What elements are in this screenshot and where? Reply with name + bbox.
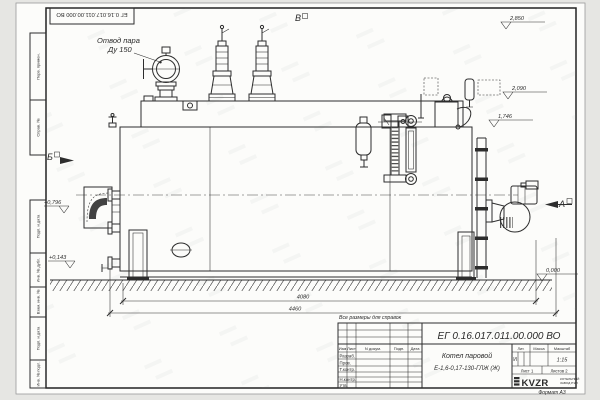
view-label-top: В: [295, 13, 301, 23]
lit-header: Лит.: [518, 347, 525, 351]
product-name: Котел паровой: [442, 352, 492, 360]
dimension-4460: 4460: [289, 307, 302, 313]
col-doc: N докум.: [365, 346, 381, 351]
elevation-0000: 0,000: [546, 268, 561, 274]
margin-label-sprav-no: Справ. №: [36, 118, 41, 136]
doc-number: ЕГ 0.16.017.011.00.000 ВО: [438, 331, 561, 342]
annotation-line2: Ду 150: [107, 45, 133, 54]
format-note: Формат А3: [538, 390, 566, 396]
row-utv: Утв.: [340, 383, 348, 388]
col-list: Лист: [347, 346, 356, 351]
scale-value: 1:15: [557, 358, 569, 364]
ground-line: [50, 280, 552, 291]
elevation-2090: 2,090: [511, 86, 527, 92]
boiler-drawing-svg: ЕГ 0.16.017.011.00.000 ВО Перв. примен. …: [0, 0, 600, 400]
elevation-0796: +0,796: [44, 200, 62, 206]
margin-label-inv-dubl: Инв. № дубл.: [36, 258, 41, 283]
annotation-line1: Отвод пара: [97, 36, 140, 45]
elevation-1746: 1,746: [498, 114, 513, 120]
sheet-number: Лист 1: [521, 369, 534, 374]
col-podp: Подп.: [394, 346, 405, 351]
mass-header: Масса: [533, 347, 545, 351]
margin-label-perv-primen: Перв. примен.: [36, 53, 41, 80]
view-label-left: Б: [47, 152, 53, 162]
product-designation: Е-1,6-0,17-130-ГЛЖ (Ж): [434, 366, 500, 372]
dimension-4080: 4080: [297, 295, 310, 301]
drawing-sheet: ЕГ 0.16.017.011.00.000 ВО Перв. примен. …: [0, 0, 600, 400]
inverted-doc-number: ЕГ 0.16.017.011.00.000 ВО: [56, 11, 128, 17]
elevation-2850: 2,850: [509, 16, 525, 22]
margin-label-inv-podl: Инв. № подл.: [36, 362, 41, 387]
lit-value: И: [513, 357, 517, 363]
brand-tagline-2: ЗАВОД РЭП: [560, 381, 578, 385]
scale-header: Масштаб: [554, 347, 571, 351]
row-prov: Пров.: [340, 361, 351, 366]
sheets-total: Листов 2: [550, 369, 568, 374]
brand-text: KVZR: [522, 378, 549, 389]
elevation-0143: +0,143: [49, 255, 67, 261]
margin-label-vzam-inv: Взам. инв. №: [36, 290, 41, 315]
reference-note: Все размеры для справок: [339, 315, 402, 321]
margin-label-podp-data-lower: Подп. и дата: [36, 326, 41, 350]
row-razrab: Разраб.: [340, 354, 355, 359]
col-data: Дата: [411, 346, 421, 351]
col-izm: Изм: [339, 346, 347, 351]
margin-label-podp-data-upper: Подп. и дата: [36, 214, 41, 238]
row-nkontr: Н.контр.: [340, 377, 357, 382]
row-tkontr: Т.контр.: [340, 367, 356, 372]
